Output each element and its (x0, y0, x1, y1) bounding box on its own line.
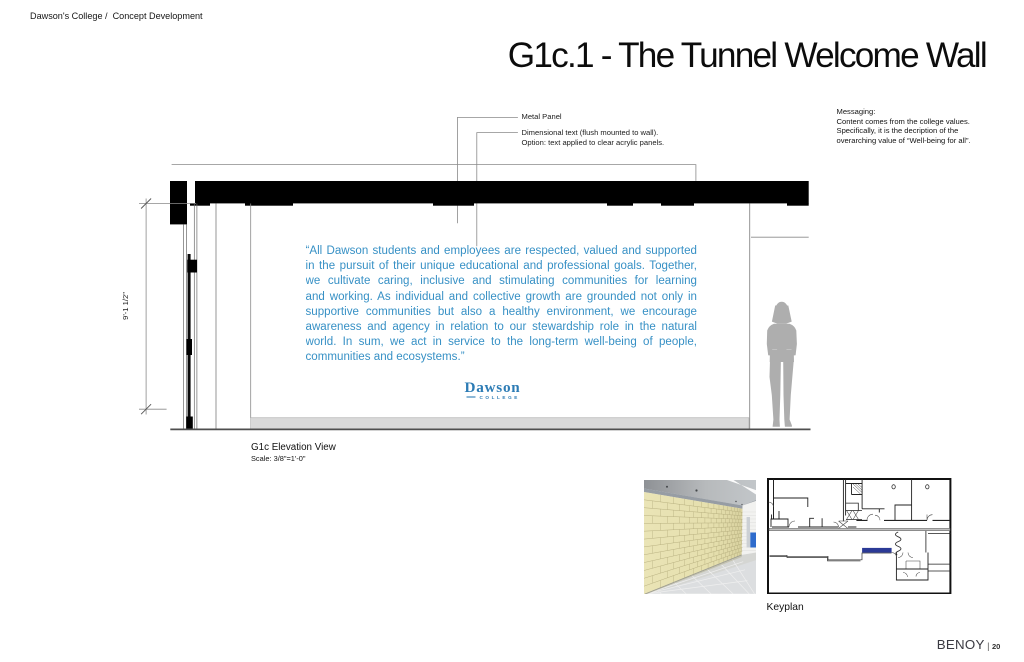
svg-text:9'-1 1/2": 9'-1 1/2" (121, 292, 130, 320)
svg-text:COLLEGE: COLLEGE (479, 395, 519, 400)
